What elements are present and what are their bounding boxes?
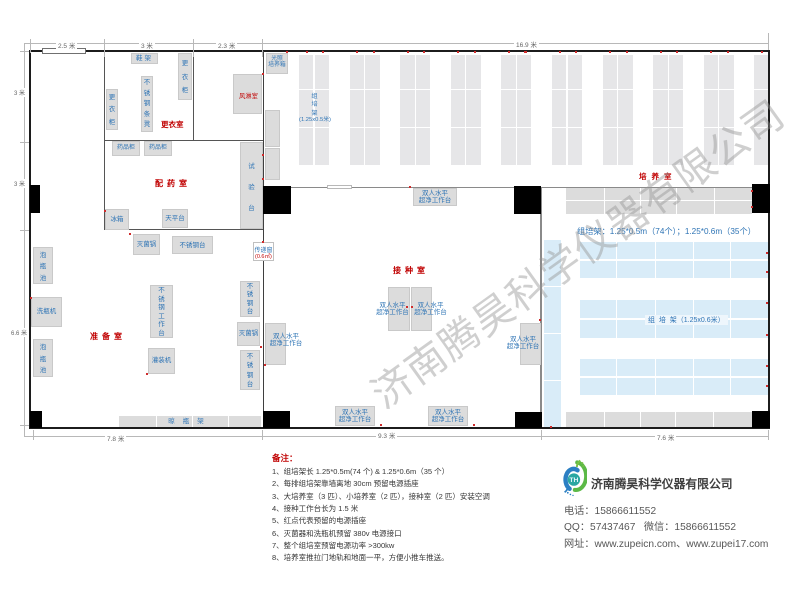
svg-text:TH: TH: [569, 477, 578, 484]
